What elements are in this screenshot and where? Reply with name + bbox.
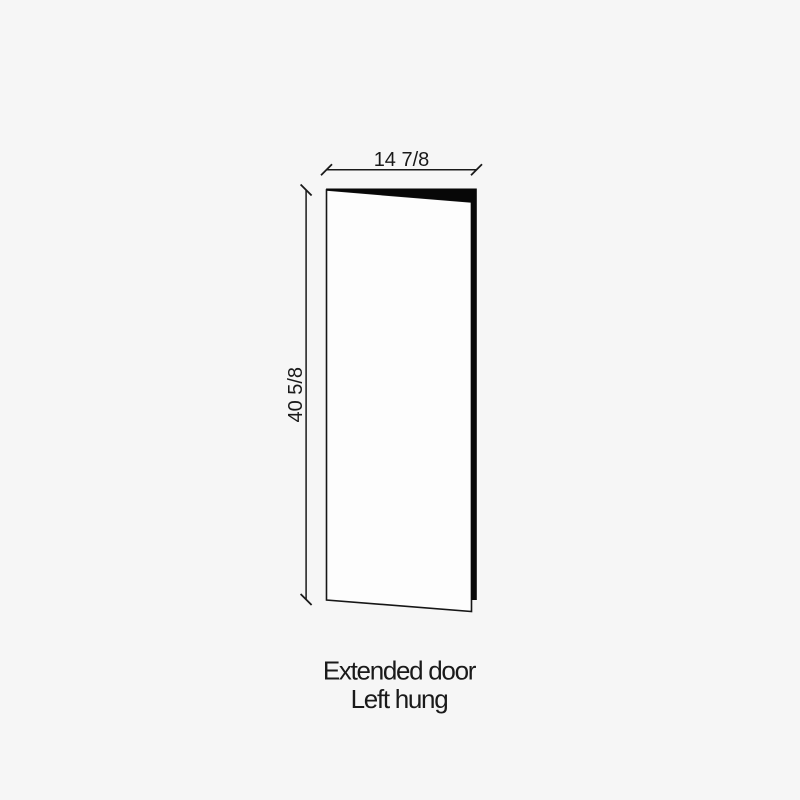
svg-text:40 5/8: 40 5/8 <box>285 367 307 423</box>
svg-text:14 7/8: 14 7/8 <box>374 149 430 171</box>
svg-text:Left hung: Left hung <box>351 684 448 714</box>
svg-text:Extended door: Extended door <box>323 655 477 685</box>
